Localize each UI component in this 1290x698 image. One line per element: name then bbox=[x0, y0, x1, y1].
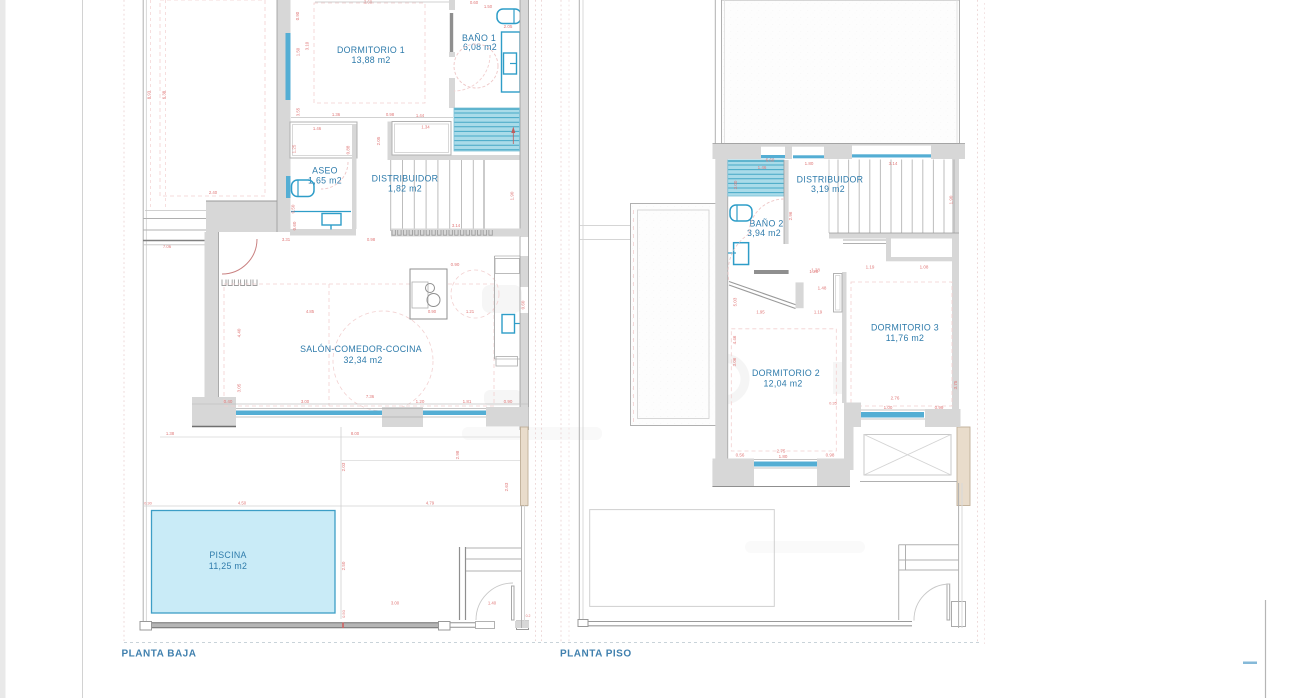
svg-text:3,19 m2: 3,19 m2 bbox=[811, 184, 845, 194]
svg-text:BAÑO 2: BAÑO 2 bbox=[749, 219, 783, 229]
svg-text:4.46: 4.46 bbox=[732, 335, 737, 344]
svg-text:2.96: 2.96 bbox=[788, 211, 793, 220]
svg-text:7.36: 7.36 bbox=[366, 394, 375, 399]
svg-text:3.06: 3.06 bbox=[732, 357, 737, 366]
svg-text:2.98: 2.98 bbox=[455, 450, 460, 459]
svg-text:1,82 m2: 1,82 m2 bbox=[388, 184, 422, 194]
svg-text:1.44: 1.44 bbox=[416, 113, 425, 118]
svg-text:SALÓN-COMEDOR-COCINA: SALÓN-COMEDOR-COCINA bbox=[300, 344, 422, 354]
svg-text:1.81: 1.81 bbox=[463, 399, 472, 404]
svg-text:1.90: 1.90 bbox=[510, 191, 515, 200]
svg-text:2.76: 2.76 bbox=[891, 396, 900, 401]
svg-text:1.00: 1.00 bbox=[884, 405, 893, 410]
svg-text:0.90: 0.90 bbox=[504, 399, 513, 404]
svg-text:PISCINA: PISCINA bbox=[209, 550, 246, 560]
svg-text:11,25 m2: 11,25 m2 bbox=[209, 561, 247, 571]
svg-text:DISTRIBUIDOR: DISTRIBUIDOR bbox=[797, 175, 864, 185]
svg-text:0.35: 0.35 bbox=[829, 401, 838, 406]
svg-text:1.90: 1.90 bbox=[949, 195, 954, 204]
svg-text:12,04 m2: 12,04 m2 bbox=[763, 379, 802, 389]
svg-text:3.31: 3.31 bbox=[282, 237, 291, 242]
svg-text:2.63: 2.63 bbox=[504, 482, 509, 491]
svg-text:0.40: 0.40 bbox=[224, 399, 233, 404]
svg-text:3,94 m2: 3,94 m2 bbox=[747, 228, 781, 238]
svg-text:2.50: 2.50 bbox=[341, 561, 346, 570]
svg-text:1.38: 1.38 bbox=[166, 431, 175, 436]
svg-text:2.75: 2.75 bbox=[777, 449, 786, 454]
svg-text:0.30: 0.30 bbox=[144, 501, 153, 506]
svg-text:2.40: 2.40 bbox=[209, 190, 218, 195]
svg-text:8.00: 8.00 bbox=[351, 431, 360, 436]
svg-text:1.21: 1.21 bbox=[466, 309, 475, 314]
svg-text:1.19: 1.19 bbox=[866, 265, 875, 270]
svg-text:0.99: 0.99 bbox=[935, 405, 944, 410]
svg-text:0.98: 0.98 bbox=[367, 237, 376, 242]
svg-text:5.03: 5.03 bbox=[733, 297, 738, 306]
svg-text:1.08: 1.08 bbox=[920, 265, 929, 270]
svg-text:0.90: 0.90 bbox=[428, 309, 437, 314]
svg-text:DISTRIBUIDOR: DISTRIBUIDOR bbox=[372, 174, 439, 184]
svg-text:3.14: 3.14 bbox=[452, 223, 461, 228]
svg-text:3.00: 3.00 bbox=[733, 180, 738, 189]
svg-text:1.25: 1.25 bbox=[292, 144, 297, 153]
svg-text:1.48: 1.48 bbox=[818, 286, 827, 291]
svg-text:1.28: 1.28 bbox=[811, 268, 820, 273]
svg-text:1.46: 1.46 bbox=[758, 165, 767, 170]
svg-text:3.55: 3.55 bbox=[296, 107, 301, 116]
svg-text:2.05: 2.05 bbox=[504, 24, 513, 29]
svg-text:DORMITORIO 2: DORMITORIO 2 bbox=[752, 368, 820, 378]
svg-text:0.98: 0.98 bbox=[826, 453, 835, 458]
svg-text:3.05: 3.05 bbox=[237, 383, 242, 392]
svg-text:0.98: 0.98 bbox=[386, 112, 395, 117]
svg-text:1.36: 1.36 bbox=[332, 112, 341, 117]
svg-text:3.00: 3.00 bbox=[391, 601, 400, 606]
svg-text:1.80: 1.80 bbox=[805, 161, 814, 166]
svg-text:0.50: 0.50 bbox=[341, 609, 346, 618]
svg-text:11,76 m2: 11,76 m2 bbox=[886, 333, 924, 343]
svg-text:8.93: 8.93 bbox=[147, 90, 152, 99]
svg-text:13,88 m2: 13,88 m2 bbox=[351, 55, 390, 65]
svg-text:DORMITORIO 3: DORMITORIO 3 bbox=[871, 323, 939, 333]
svg-text:1.40: 1.40 bbox=[488, 601, 497, 606]
svg-text:2.05: 2.05 bbox=[376, 136, 381, 145]
svg-text:0.50: 0.50 bbox=[291, 204, 296, 213]
svg-text:6.60: 6.60 bbox=[766, 158, 775, 163]
svg-text:3.75: 3.75 bbox=[953, 380, 958, 389]
svg-text:PLANTA BAJA: PLANTA BAJA bbox=[122, 649, 197, 660]
svg-text:4.85: 4.85 bbox=[306, 309, 315, 314]
svg-text:1.20: 1.20 bbox=[416, 399, 425, 404]
svg-text:4.40: 4.40 bbox=[237, 328, 242, 337]
svg-text:4.50: 4.50 bbox=[238, 501, 247, 506]
svg-text:3.00: 3.00 bbox=[301, 399, 310, 404]
svg-text:PLANTA PISO: PLANTA PISO bbox=[560, 649, 632, 660]
svg-text:6.38: 6.38 bbox=[162, 90, 167, 99]
svg-text:0.90: 0.90 bbox=[295, 11, 300, 20]
svg-text:3.10: 3.10 bbox=[305, 41, 310, 50]
svg-text:1.46: 1.46 bbox=[313, 126, 322, 131]
svg-text:2.03: 2.03 bbox=[341, 462, 346, 471]
svg-text:32,34 m2: 32,34 m2 bbox=[343, 355, 382, 365]
svg-text:DORMITORIO 1: DORMITORIO 1 bbox=[337, 45, 405, 55]
svg-text:1.95: 1.95 bbox=[756, 310, 765, 315]
svg-text:4.79: 4.79 bbox=[426, 501, 435, 506]
svg-text:1.34: 1.34 bbox=[421, 125, 430, 130]
svg-text:1.50: 1.50 bbox=[484, 4, 493, 9]
svg-text:ASEO: ASEO bbox=[312, 166, 338, 176]
svg-text:0.60: 0.60 bbox=[470, 0, 479, 5]
svg-text:0.60: 0.60 bbox=[521, 300, 526, 309]
svg-text:1.50: 1.50 bbox=[296, 47, 301, 56]
svg-text:3.14: 3.14 bbox=[889, 161, 898, 166]
svg-text:1.19: 1.19 bbox=[814, 310, 823, 315]
svg-text:0.90: 0.90 bbox=[451, 262, 460, 267]
svg-text:0.88: 0.88 bbox=[346, 145, 351, 154]
svg-text:0.60: 0.60 bbox=[292, 221, 297, 230]
svg-text:1.80: 1.80 bbox=[779, 454, 788, 459]
svg-text:0.2: 0.2 bbox=[526, 614, 531, 618]
svg-text:0.56: 0.56 bbox=[736, 453, 745, 458]
